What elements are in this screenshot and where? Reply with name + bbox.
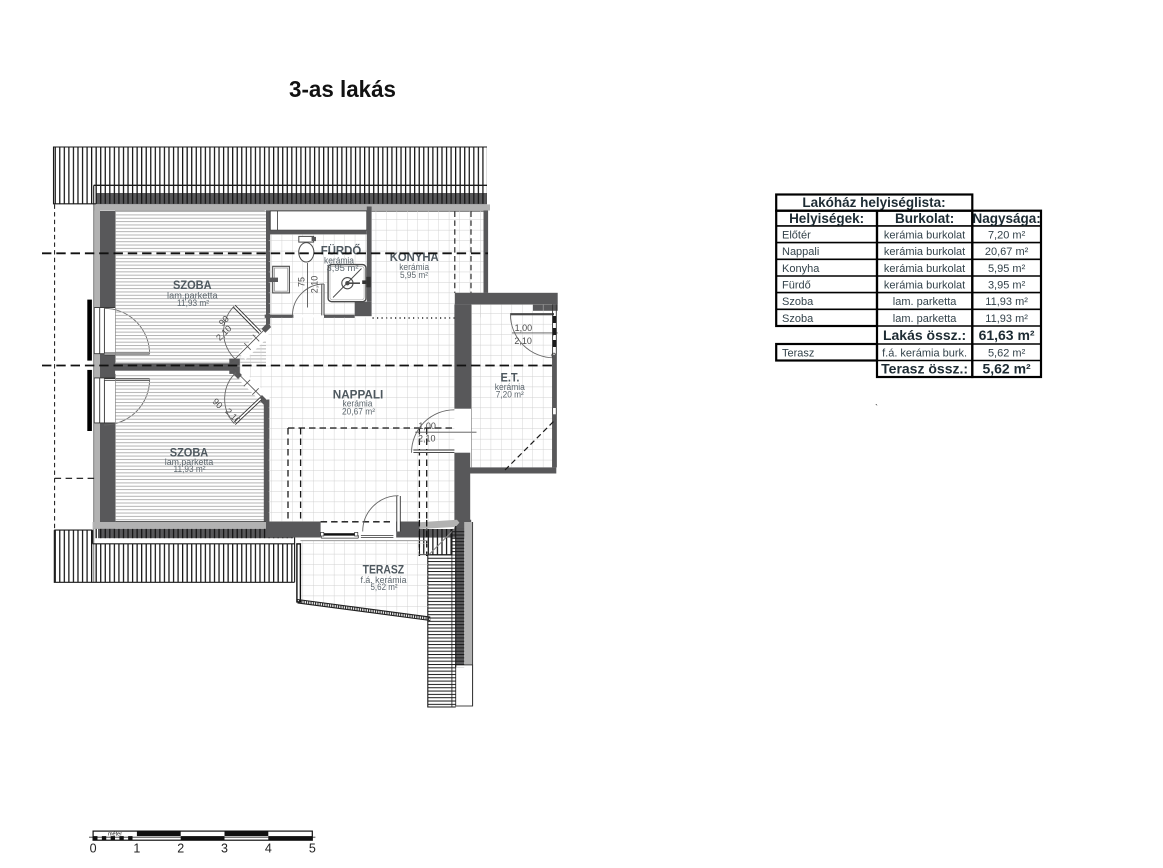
svg-text:7,20 m²: 7,20 m² bbox=[496, 389, 524, 399]
svg-text:Konyha: Konyha bbox=[782, 263, 820, 275]
svg-text:3: 3 bbox=[221, 842, 228, 856]
svg-text:Nagysága:: Nagysága: bbox=[972, 211, 1040, 226]
svg-text:11,93 m²: 11,93 m² bbox=[985, 296, 1028, 308]
svg-text:Lakóház helyiséglista:: Lakóház helyiséglista: bbox=[802, 195, 945, 210]
svg-text:1: 1 bbox=[133, 842, 140, 856]
svg-text:lam. parketta: lam. parketta bbox=[893, 313, 957, 325]
svg-text:lam. parketta: lam. parketta bbox=[893, 296, 957, 308]
svg-text:méter: méter bbox=[108, 832, 122, 838]
svg-text:5,95 m²: 5,95 m² bbox=[988, 263, 1026, 275]
svg-text:5,95 m²: 5,95 m² bbox=[400, 270, 428, 280]
svg-text:2,10: 2,10 bbox=[310, 276, 320, 294]
svg-text:Szoba: Szoba bbox=[782, 296, 814, 308]
svg-text:4: 4 bbox=[265, 842, 272, 856]
svg-text:kerámia burkolat: kerámia burkolat bbox=[884, 280, 965, 292]
svg-text:3,95 m²: 3,95 m² bbox=[988, 280, 1026, 292]
svg-text:Nappali: Nappali bbox=[782, 246, 819, 258]
svg-text:75: 75 bbox=[297, 277, 307, 287]
svg-text:61,63 m²: 61,63 m² bbox=[979, 327, 1035, 343]
svg-text:Fürdő: Fürdő bbox=[782, 280, 811, 292]
svg-text:3,95 m²: 3,95 m² bbox=[327, 263, 359, 273]
svg-text:5: 5 bbox=[309, 842, 316, 856]
svg-text:f.á. kerámia burk.: f.á. kerámia burk. bbox=[882, 348, 967, 360]
svg-text:5,62 m²: 5,62 m² bbox=[371, 582, 398, 592]
svg-text:Előtér: Előtér bbox=[782, 230, 811, 242]
svg-text:Helyiségek:: Helyiségek: bbox=[789, 211, 864, 226]
svg-text:5,62 m²: 5,62 m² bbox=[988, 348, 1026, 360]
svg-text:20,67 m²: 20,67 m² bbox=[985, 246, 1029, 258]
svg-text:2: 2 bbox=[177, 842, 184, 856]
svg-text:3-as lakás: 3-as lakás bbox=[289, 76, 396, 102]
svg-text:20,67 m²: 20,67 m² bbox=[342, 407, 375, 417]
svg-text:1,00: 1,00 bbox=[515, 323, 533, 333]
svg-text:1,00: 1,00 bbox=[418, 421, 436, 431]
svg-text:2,10: 2,10 bbox=[418, 434, 436, 444]
svg-text:Szoba: Szoba bbox=[782, 313, 814, 325]
svg-text:Lakás össz.:: Lakás össz.: bbox=[883, 327, 966, 343]
svg-text:11,93 m²: 11,93 m² bbox=[177, 298, 209, 308]
svg-text:11,93 m²: 11,93 m² bbox=[174, 464, 206, 474]
svg-text:0: 0 bbox=[90, 842, 97, 856]
svg-text:5,62 m²: 5,62 m² bbox=[982, 361, 1031, 377]
svg-text:Terasz össz.:: Terasz össz.: bbox=[881, 361, 968, 377]
svg-text:11,93 m²: 11,93 m² bbox=[985, 313, 1028, 325]
svg-text:`: ` bbox=[875, 403, 878, 413]
svg-text:Terasz: Terasz bbox=[782, 348, 814, 360]
svg-text:Burkolat:: Burkolat: bbox=[895, 211, 954, 226]
svg-text:2,10: 2,10 bbox=[514, 336, 532, 346]
svg-text:kerámia burkolat: kerámia burkolat bbox=[884, 246, 965, 258]
svg-text:7,20 m²: 7,20 m² bbox=[988, 230, 1026, 242]
svg-text:kerámia burkolat: kerámia burkolat bbox=[884, 263, 965, 275]
svg-text:kerámia burkolat: kerámia burkolat bbox=[884, 230, 965, 242]
